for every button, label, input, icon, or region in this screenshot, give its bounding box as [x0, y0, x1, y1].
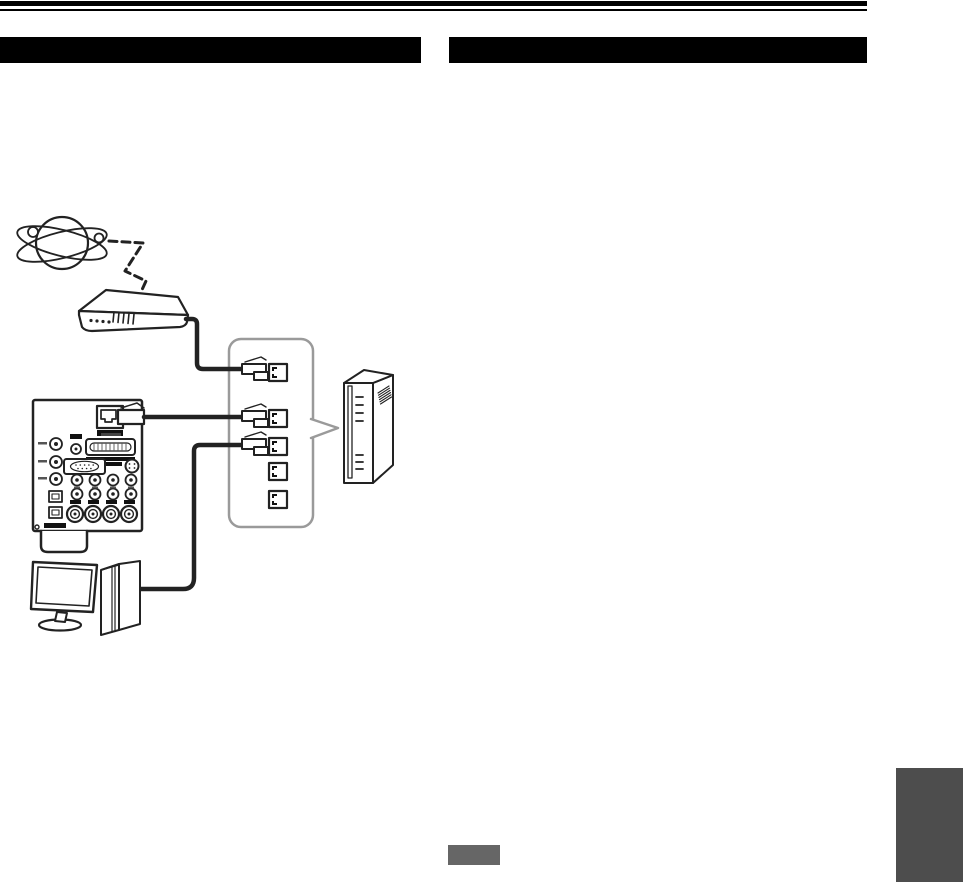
manual-page: { "page": { "width": 963, "height": 882,…: [0, 0, 963, 882]
receiver-rear-panel-icon: [33, 400, 144, 552]
internet-modem-dashed-line: [109, 241, 146, 292]
ethernet-port-icon-2: [269, 410, 287, 427]
network-connection-diagram: [0, 0, 963, 882]
modem-icon: [79, 290, 188, 331]
ethernet-port-icon-1: [269, 364, 287, 381]
desktop-computer-icon: [31, 561, 140, 635]
callout-pointer: [311, 419, 338, 438]
ethernet-port-icon-4: [269, 463, 287, 480]
receiver-vga-connector: [64, 459, 105, 474]
router-tower-icon: [344, 370, 393, 483]
ethernet-port-icon-5: [269, 491, 287, 508]
globe-orbit-icon: [14, 217, 110, 269]
ethernet-port-icon-3: [269, 438, 287, 455]
computer-to-router-cable: [141, 445, 242, 589]
